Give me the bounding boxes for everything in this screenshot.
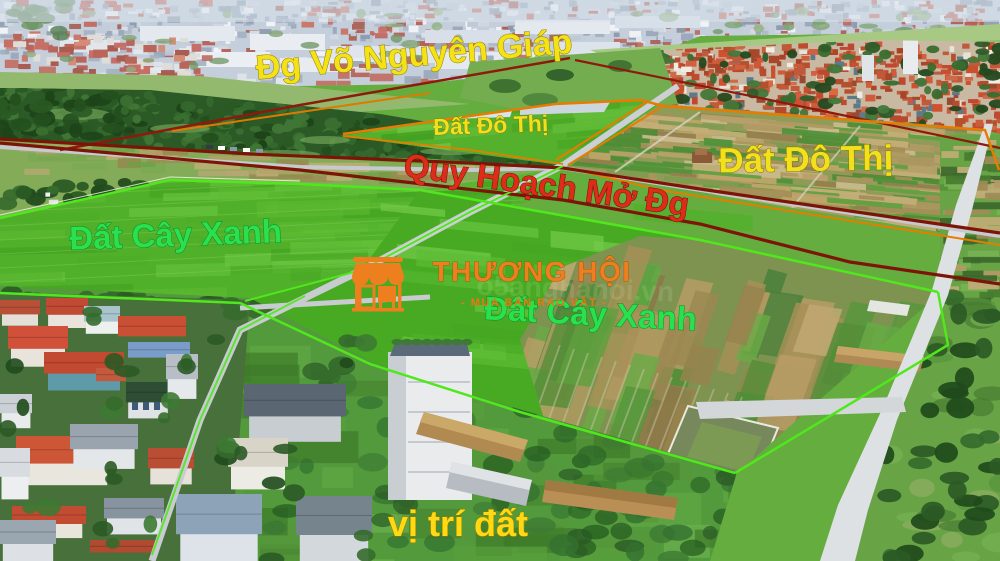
svg-text:- MUA BÁN RAO VẶT -: - MUA BÁN RAO VẶT - [461, 296, 607, 309]
svg-text:THƯƠNG HỘI: THƯƠNG HỘI [433, 255, 632, 287]
svg-text:Đất Cây Xanh: Đất Cây Xanh [69, 212, 283, 256]
svg-text:Đất Đô Thị: Đất Đô Thị [433, 110, 549, 140]
svg-text:Đất Đô Thị: Đất Đô Thị [718, 138, 894, 180]
svg-text:vị trí đất: vị trí đất [388, 503, 528, 544]
